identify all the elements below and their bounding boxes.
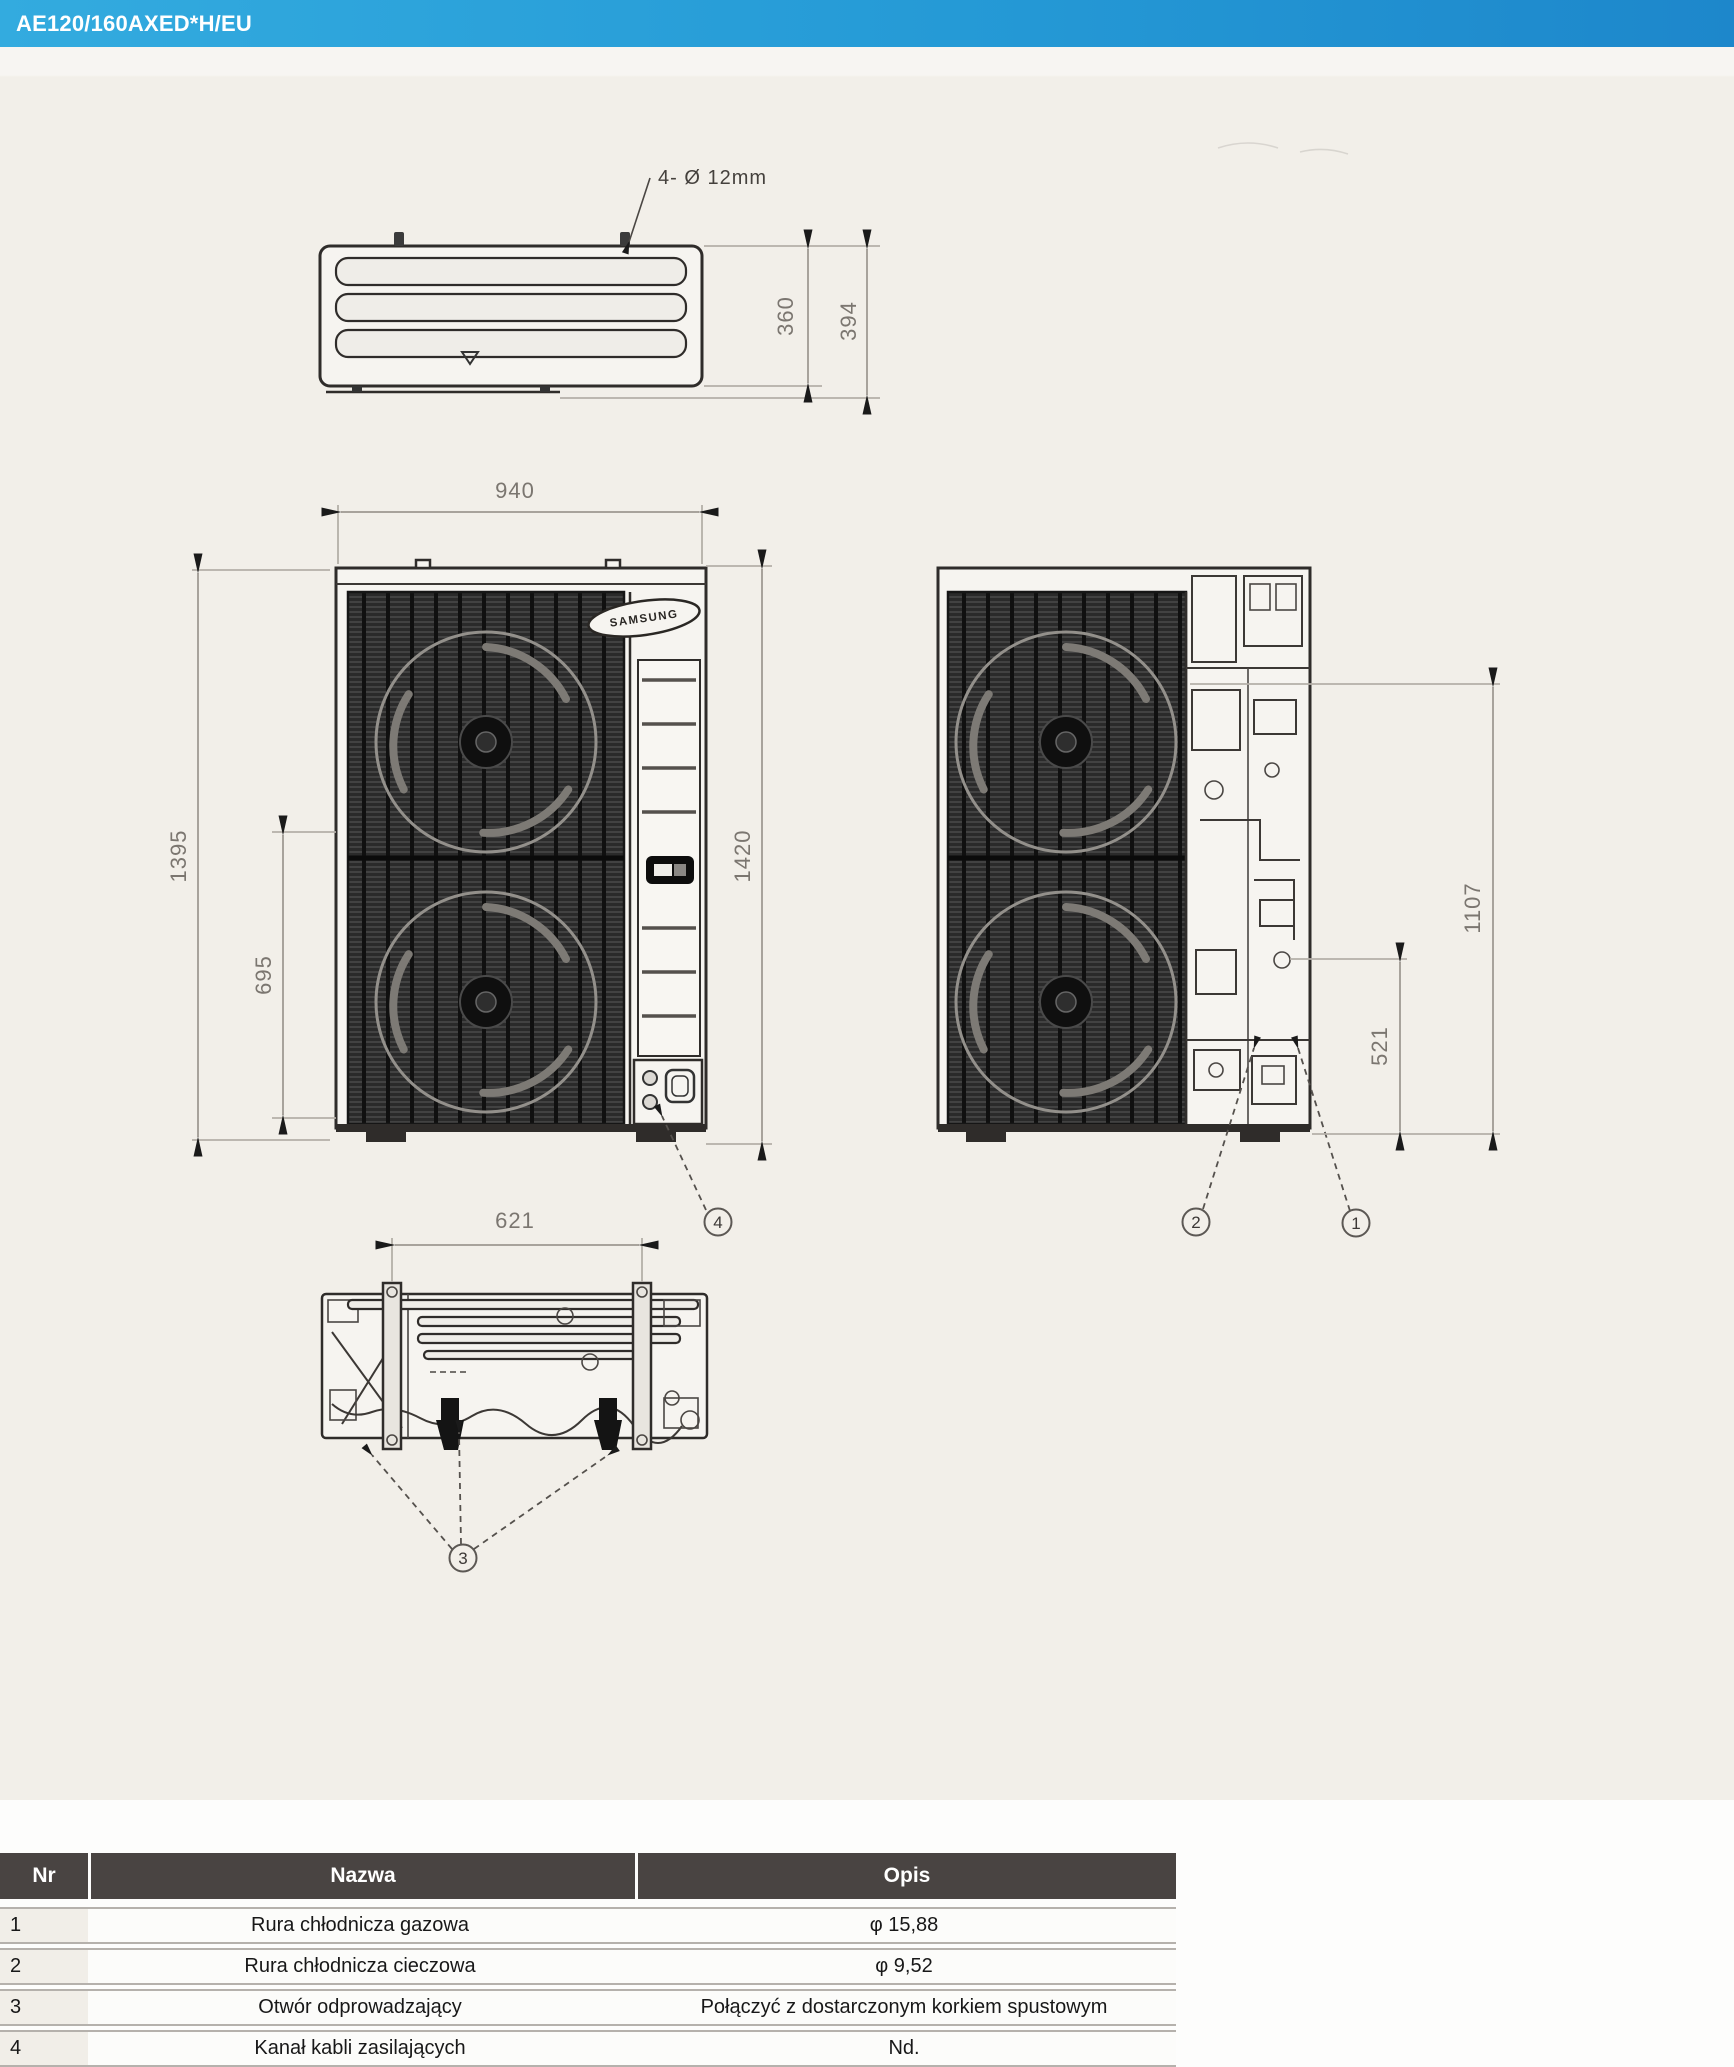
parts-table: Nr Nazwa Opis 1 Rura chłodnicza gazowa φ… <box>0 1853 1176 2067</box>
dim-front-width: 940 <box>495 478 535 503</box>
dim-front-height-1395: 1395 <box>166 830 191 883</box>
dim-front-inner-695: 695 <box>251 955 276 995</box>
balloon-1-label: 1 <box>1351 1214 1360 1233</box>
balloon-3-label: 3 <box>458 1549 467 1568</box>
column-header-nazwa: Nazwa <box>91 1853 635 1899</box>
table-row: 1 Rura chłodnicza gazowa φ 15,88 <box>0 1907 1176 1944</box>
row-opis: φ 15,88 <box>632 1909 1176 1942</box>
parts-table-header: Nr Nazwa Opis <box>0 1853 1176 1899</box>
top-view: 4- Ø 12mm 360 394 <box>320 167 880 398</box>
faint-marks <box>1218 143 1348 154</box>
dim-top-depth-394: 394 <box>836 301 861 341</box>
column-header-opis: Opis <box>638 1853 1176 1899</box>
dim-bottom-621: 621 <box>495 1208 535 1233</box>
row-opis: Nd. <box>632 2032 1176 2065</box>
spec-sheet-page: AE120/160AXED*H/EU <box>0 0 1734 2047</box>
row-nr: 1 <box>0 1909 88 1942</box>
louver-panel <box>638 660 700 1056</box>
table-row: 3 Otwór odprowadzający Połączyć z dostar… <box>0 1989 1176 2026</box>
row-nr: 4 <box>0 2032 88 2065</box>
dim-top-depth-360: 360 <box>773 296 798 336</box>
row-opis: φ 9,52 <box>632 1950 1176 1983</box>
dim-front-height-1420: 1420 <box>730 830 755 883</box>
row-nazwa: Rura chłodnicza cieczowa <box>88 1950 632 1983</box>
front-view: SAMSUNG <box>166 478 772 1236</box>
balloon-4-label: 4 <box>713 1213 722 1232</box>
row-nr: 2 <box>0 1950 88 1983</box>
table-row: 4 Kanał kabli zasilających Nd. <box>0 2030 1176 2067</box>
balloon-2-label: 2 <box>1191 1213 1200 1232</box>
bottom-view: 621 3 <box>322 1208 707 1572</box>
side-view: 2 1 1107 521 <box>938 568 1500 1237</box>
table-row: 2 Rura chłodnicza cieczowa φ 9,52 <box>0 1948 1176 1985</box>
row-nazwa: Rura chłodnicza gazowa <box>88 1909 632 1942</box>
parts-table-body: 1 Rura chłodnicza gazowa φ 15,88 2 Rura … <box>0 1907 1176 2067</box>
column-header-nr: Nr <box>0 1853 88 1899</box>
service-box <box>634 1060 702 1124</box>
technical-drawing: 4- Ø 12mm 360 394 SAMSUNG <box>0 0 1734 1810</box>
row-nr: 3 <box>0 1991 88 2024</box>
dim-side-1107: 1107 <box>1460 882 1485 933</box>
bolt-hole-note: 4- Ø 12mm <box>658 167 767 189</box>
row-nazwa: Otwór odprowadzający <box>88 1991 632 2024</box>
row-opis: Połączyć z dostarczonym korkiem spustowy… <box>632 1991 1176 2024</box>
dim-side-521: 521 <box>1367 1026 1392 1066</box>
row-nazwa: Kanał kabli zasilających <box>88 2032 632 2065</box>
